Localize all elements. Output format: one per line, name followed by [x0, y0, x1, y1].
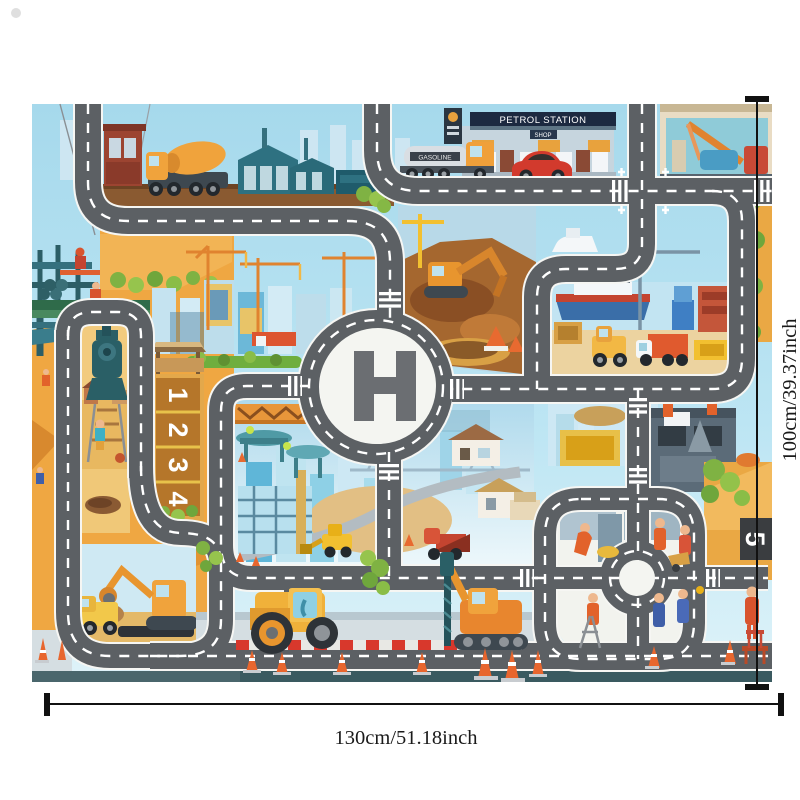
svg-text:2: 2 [163, 422, 193, 437]
svg-text:PETROL STATION: PETROL STATION [499, 115, 586, 126]
svg-text:SHOP: SHOP [534, 133, 551, 139]
svg-text:3: 3 [163, 457, 193, 472]
svg-text:1: 1 [163, 387, 193, 402]
svg-text:100cm/39.37inch: 100cm/39.37inch [779, 319, 800, 462]
svg-text:130cm/51.18inch: 130cm/51.18inch [335, 727, 478, 749]
svg-text:4: 4 [163, 491, 193, 506]
svg-text:GASOLINE: GASOLINE [418, 155, 452, 162]
svg-text:5: 5 [740, 531, 770, 546]
